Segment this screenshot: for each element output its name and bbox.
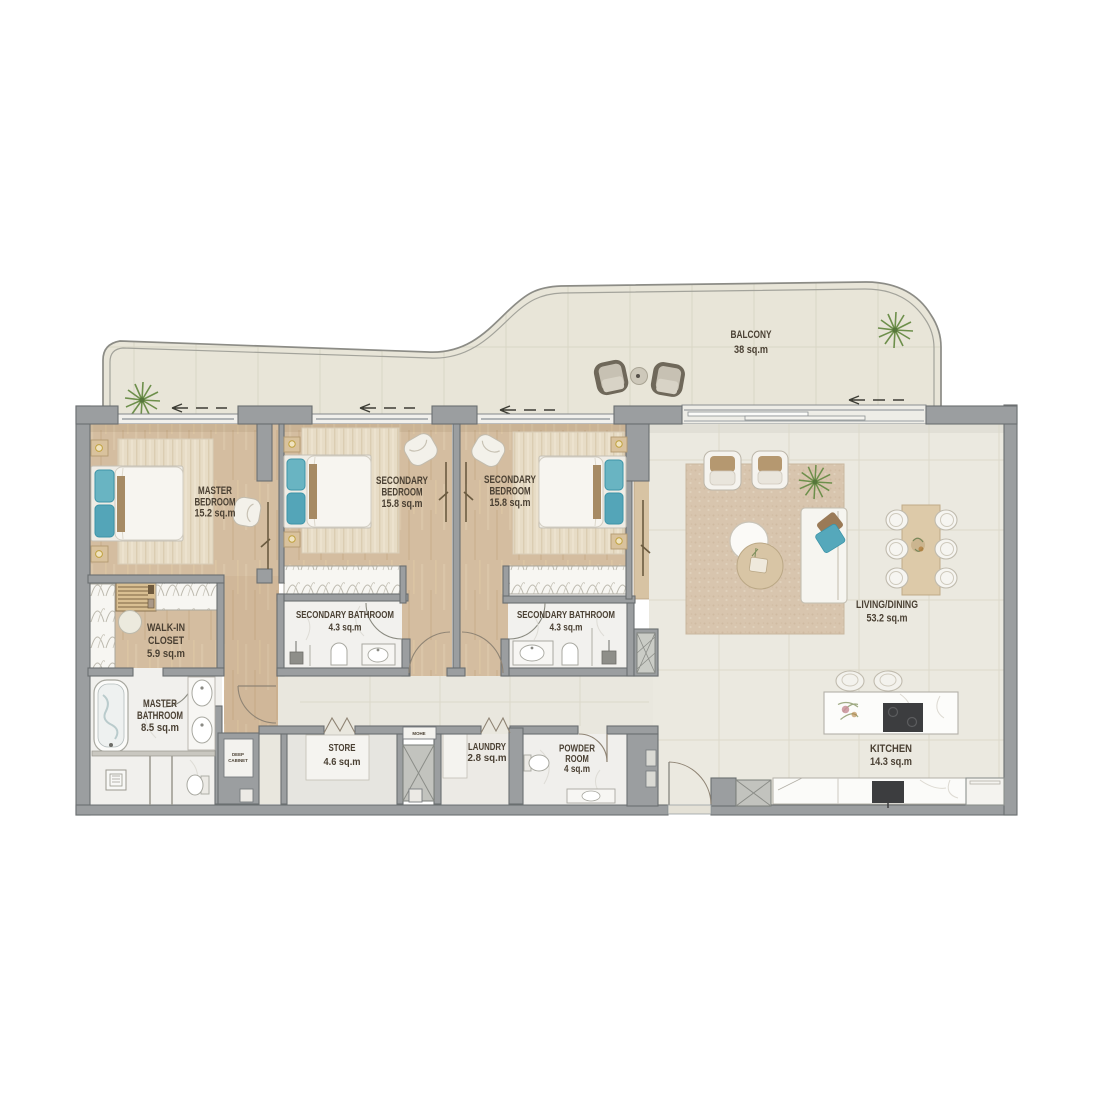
svg-text:2.8 sq.m: 2.8 sq.m (468, 753, 507, 764)
svg-text:38 sq.m: 38 sq.m (734, 344, 768, 356)
svg-text:LIVING/DINING: LIVING/DINING (856, 599, 918, 611)
svg-text:8.5 sq.m: 8.5 sq.m (141, 722, 179, 734)
svg-text:4.6 sq.m: 4.6 sq.m (324, 757, 361, 768)
svg-text:LAUNDRY: LAUNDRY (468, 742, 506, 753)
svg-text:STORE: STORE (329, 743, 356, 754)
svg-text:DEEP: DEEP (232, 752, 244, 757)
svg-text:BATHROOM: BATHROOM (137, 710, 183, 722)
svg-text:SECONDARY: SECONDARY (376, 475, 428, 487)
svg-text:SECONDARY BATHROOM: SECONDARY BATHROOM (296, 610, 394, 621)
svg-text:53.2 sq.m: 53.2 sq.m (867, 613, 908, 625)
svg-text:SECONDARY: SECONDARY (484, 474, 536, 486)
svg-text:MASTER: MASTER (198, 485, 232, 497)
svg-text:POWDER: POWDER (559, 744, 596, 755)
svg-text:4.3 sq.m: 4.3 sq.m (550, 623, 583, 634)
svg-text:BALCONY: BALCONY (731, 329, 772, 341)
svg-text:15.2 sq.m: 15.2 sq.m (195, 508, 236, 520)
svg-text:15.8 sq.m: 15.8 sq.m (382, 498, 423, 510)
svg-text:5.9 sq.m: 5.9 sq.m (147, 648, 185, 660)
svg-text:14.3 sq.m: 14.3 sq.m (870, 756, 912, 768)
svg-text:BEDROOM: BEDROOM (490, 486, 531, 498)
svg-text:4.3 sq.m: 4.3 sq.m (329, 623, 362, 634)
svg-text:CLOSET: CLOSET (148, 635, 184, 647)
svg-text:CABINET: CABINET (228, 758, 248, 763)
svg-text:KITCHEN: KITCHEN (870, 743, 912, 755)
svg-text:BEDROOM: BEDROOM (382, 487, 423, 499)
svg-text:WALK-IN: WALK-IN (147, 622, 185, 634)
svg-text:4 sq.m: 4 sq.m (564, 764, 590, 775)
svg-text:MOHE: MOHE (412, 731, 425, 736)
svg-text:SECONDARY BATHROOM: SECONDARY BATHROOM (517, 610, 615, 621)
svg-text:MASTER: MASTER (143, 698, 177, 710)
svg-text:15.8 sq.m: 15.8 sq.m (490, 497, 531, 509)
